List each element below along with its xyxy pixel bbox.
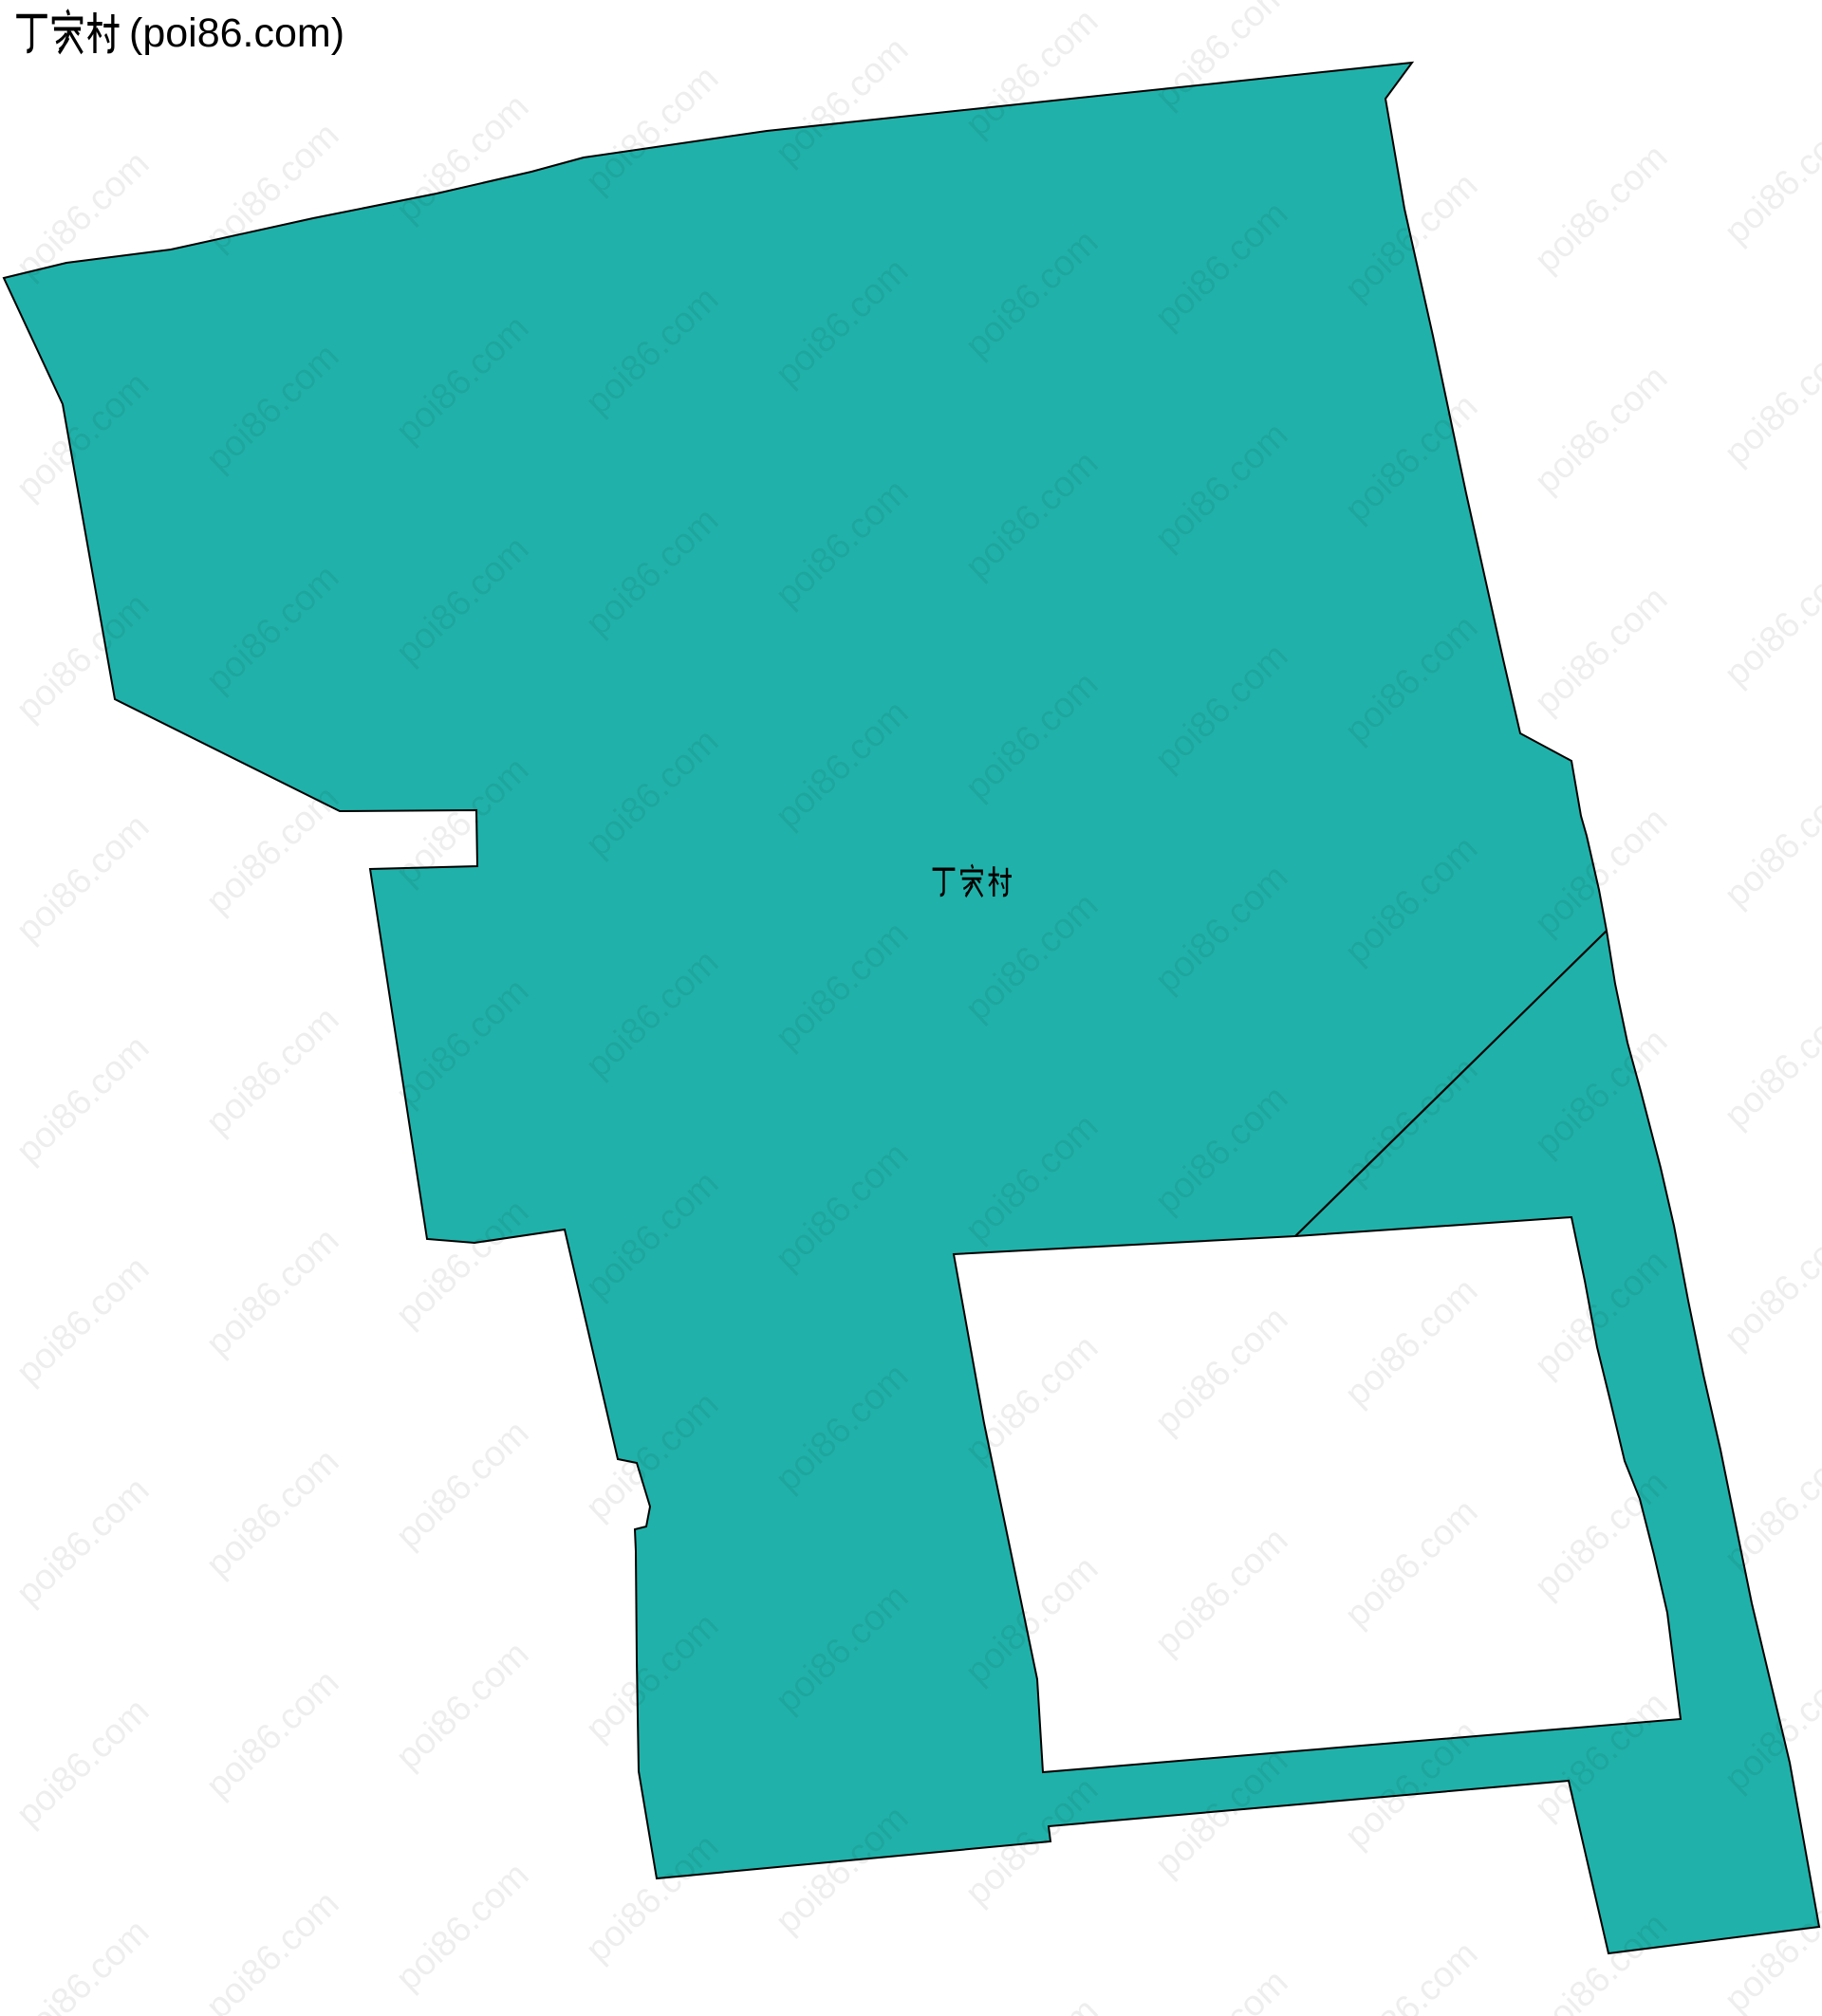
svg-text:poi86.com: poi86.com [1717,1213,1822,1357]
svg-text:poi86.com: poi86.com [388,1413,536,1556]
svg-text:poi86.com: poi86.com [1147,1520,1295,1663]
svg-text:poi86.com: poi86.com [198,1662,346,1805]
svg-text:(poi86.com): (poi86.com) [129,10,344,56]
svg-text:poi86.com: poi86.com [198,1883,346,2016]
svg-text:poi86.com: poi86.com [1717,771,1822,915]
svg-text:poi86.com: poi86.com [198,778,346,921]
svg-text:poi86.com: poi86.com [9,1470,157,1613]
svg-text:poi86.com: poi86.com [1717,992,1822,1136]
svg-text:poi86.com: poi86.com [9,806,157,950]
svg-text:poi86.com: poi86.com [9,1912,157,2016]
svg-text:poi86.com: poi86.com [1527,358,1675,501]
svg-text:poi86.com: poi86.com [1717,329,1822,472]
svg-text:poi86.com: poi86.com [388,1855,536,1998]
svg-text:poi86.com: poi86.com [198,1441,346,1584]
svg-text:poi86.com: poi86.com [957,1990,1106,2016]
svg-text:poi86.com: poi86.com [1337,1491,1485,1635]
svg-text:poi86.com: poi86.com [9,1691,157,1834]
svg-text:poi86.com: poi86.com [1147,1962,1295,2016]
svg-text:poi86.com: poi86.com [1527,137,1675,280]
svg-text:poi86.com: poi86.com [198,999,346,1142]
svg-text:poi86.com: poi86.com [1337,1270,1485,1414]
svg-text:poi86.com: poi86.com [1717,108,1822,251]
svg-text:poi86.com: poi86.com [9,1248,157,1392]
svg-text:poi86.com: poi86.com [1527,579,1675,722]
svg-text:poi86.com: poi86.com [1147,1299,1295,1442]
svg-text:poi86.com: poi86.com [9,1027,157,1171]
svg-text:poi86.com: poi86.com [1717,550,1822,694]
svg-text:poi86.com: poi86.com [198,1220,346,1363]
svg-text:poi86.com: poi86.com [388,1634,536,1777]
svg-text:poi86.com: poi86.com [1337,1933,1485,2016]
